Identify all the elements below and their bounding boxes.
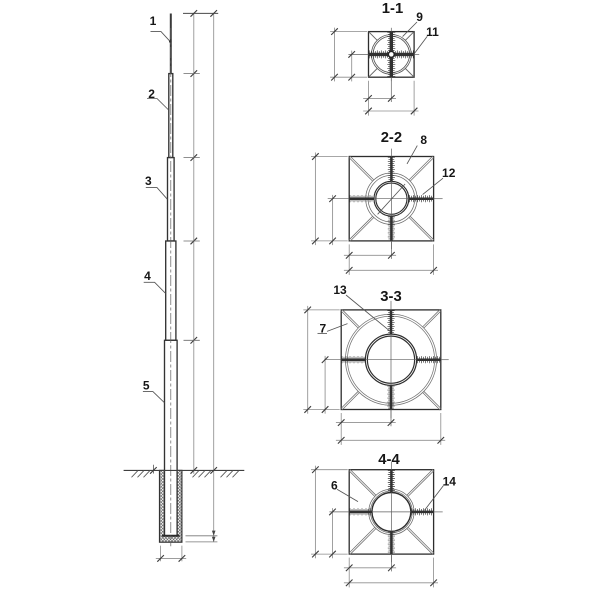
svg-text:14: 14 [443,474,457,488]
svg-text:4-4: 4-4 [378,452,400,468]
svg-text:12: 12 [442,166,456,180]
svg-text:13: 13 [333,283,347,297]
svg-text:4: 4 [144,269,151,283]
svg-text:3: 3 [145,174,152,188]
svg-text:7: 7 [320,321,327,335]
svg-text:2: 2 [148,87,155,101]
svg-text:2-2: 2-2 [381,130,402,146]
svg-text:1: 1 [150,14,157,28]
svg-text:1-1: 1-1 [382,1,403,17]
svg-text:6: 6 [331,479,338,493]
svg-text:9: 9 [416,10,423,24]
svg-text:11: 11 [426,25,439,39]
svg-text:8: 8 [420,133,427,147]
svg-text:5: 5 [143,378,150,392]
